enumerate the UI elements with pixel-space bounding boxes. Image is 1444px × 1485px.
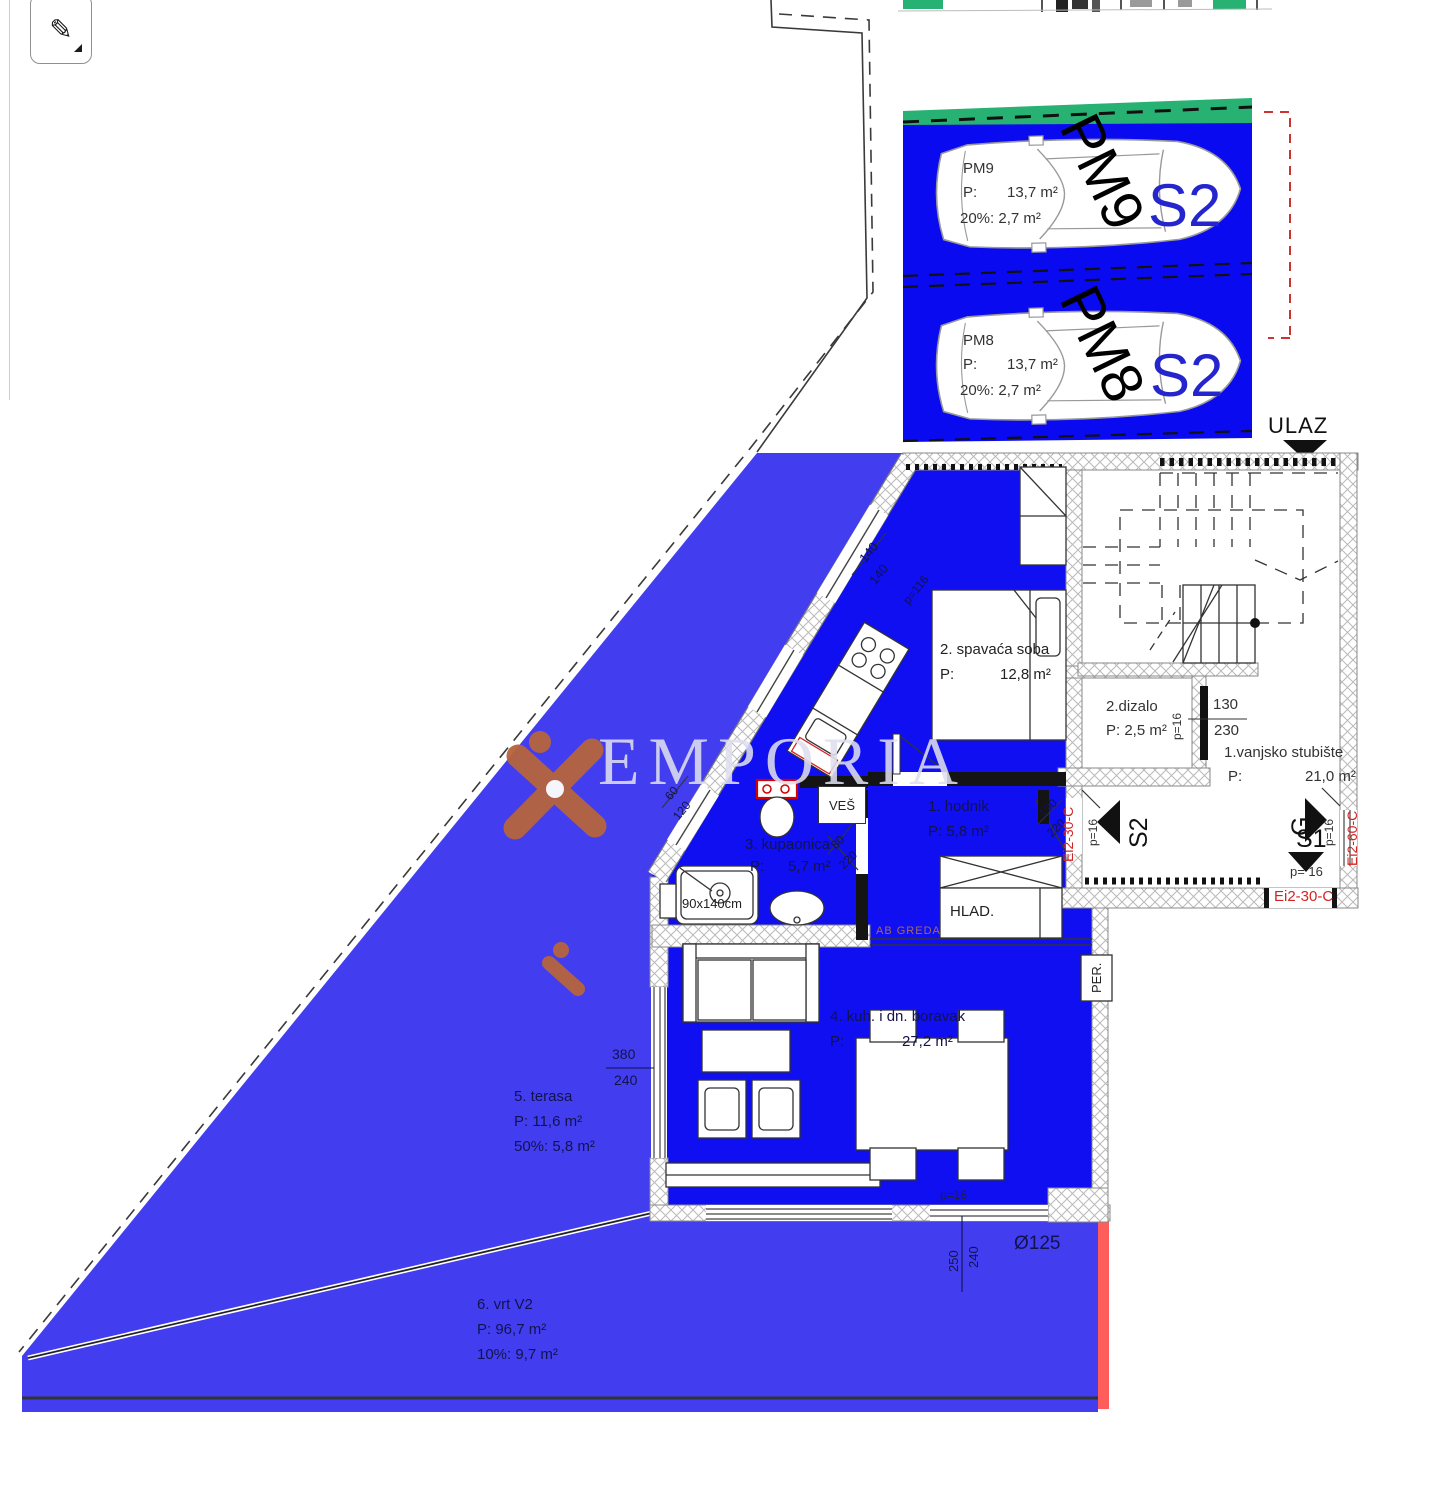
ab-greda-label: AB GREDA	[876, 925, 941, 939]
pm8-pct: 20%: 2,7 m²	[960, 382, 1041, 401]
dim-380: 380	[612, 1046, 635, 1064]
hlad-label: HLAD.	[950, 903, 994, 922]
pen-tool-button[interactable]: ✎	[30, 0, 92, 64]
dim-250: 250	[946, 1250, 962, 1272]
shower-size-label: 90x140cm	[682, 896, 742, 912]
dim-p16-dizalo: p=16	[1170, 713, 1185, 740]
dizalo-name: 2.dizalo	[1106, 698, 1158, 717]
hodnik-area: P: 5,8 m²	[928, 823, 989, 842]
dim-240-b: 240	[966, 1246, 982, 1268]
boravak-area: 27,2 m²	[902, 1033, 953, 1052]
vrt-area: P: 96,7 m²	[477, 1321, 546, 1340]
kupaonica-area: 5,7 m²	[788, 858, 831, 877]
dim-p16-left: p=16	[1086, 819, 1101, 846]
dim-230: 230	[1214, 722, 1239, 741]
fire-label-left: Ei2-30-C	[1060, 807, 1078, 862]
vrt-name: 6. vrt V2	[477, 1296, 533, 1315]
pm9-unit-label: S2	[1148, 168, 1221, 243]
kitchen-tall-units	[940, 856, 1062, 938]
emporia-watermark: EMPORIA	[598, 722, 967, 801]
red-dashed-boundary	[1264, 112, 1290, 338]
kupaonica-p: P:	[750, 858, 764, 877]
spavaca-name: 2. spavaća soba	[940, 641, 1049, 660]
kupaonica-name: 3. kupaonica	[745, 836, 830, 855]
pm9-pct: 20%: 2,7 m²	[960, 210, 1041, 229]
arrow-s2-label: S2	[1124, 817, 1155, 848]
dim-130: 130	[1213, 696, 1238, 715]
arrow-s1-label: S1	[1296, 824, 1327, 855]
terasa-area: P: 11,6 m²	[514, 1113, 582, 1132]
ulaz-label: ULAZ	[1268, 412, 1328, 440]
ves-box: VEŠ	[818, 786, 866, 824]
staircase	[1083, 473, 1338, 663]
fire-label-bottom: Ei2-30-C	[1274, 888, 1333, 907]
bed	[932, 590, 1066, 740]
pm8-unit-label: S2	[1150, 338, 1223, 413]
spavaca-area: 12,8 m²	[1000, 666, 1051, 685]
stubiste-area: 21,0 m²	[1305, 768, 1356, 787]
red-boundary-strip	[1098, 1213, 1109, 1409]
pm9-p-label: P:	[963, 184, 977, 203]
hodnik-name: 1. hodnik	[928, 798, 989, 817]
dim-240: 240	[614, 1072, 637, 1090]
wardrobe	[1020, 467, 1066, 565]
pen-icon: ✎	[49, 13, 72, 46]
terasa-pct: 50%: 5,8 m²	[514, 1138, 595, 1157]
stubiste-name: 1.vanjsko stubište	[1224, 744, 1343, 763]
pm8-area: 13,7 m²	[1007, 356, 1058, 375]
floorplan-canvas: EMPORIA ✎ PM9 P: 13,7 m² 20%: 2,7 m² PM9…	[0, 0, 1444, 1485]
dim-fi125: Ø125	[1014, 1232, 1060, 1256]
tv-sideboard	[666, 1163, 880, 1187]
dropdown-corner-icon	[74, 44, 82, 52]
spavaca-p: P:	[940, 666, 954, 685]
pm8-id: PM8	[963, 332, 994, 351]
dim-p16-bottom: p= 16	[1290, 864, 1323, 880]
pm9-id: PM9	[963, 160, 994, 179]
boravak-name: 4. kuh. i dn. boravak	[830, 1008, 965, 1027]
vrt-pct: 10%: 9,7 m²	[477, 1346, 558, 1365]
per-label: PER.	[1089, 963, 1105, 993]
dim-p16-wall: p=16	[940, 1188, 967, 1203]
dizalo-area: P: 2,5 m²	[1106, 722, 1167, 741]
sofa	[683, 944, 819, 1022]
stubiste-p: P:	[1228, 768, 1242, 787]
top-cutoff-strip	[898, 0, 1272, 12]
washbasin	[770, 891, 824, 925]
pm9-area: 13,7 m²	[1007, 184, 1058, 203]
fire-label-right: Ei2-60-C	[1344, 811, 1362, 866]
terasa-name: 5. terasa	[514, 1088, 572, 1107]
coffee-table	[702, 1030, 790, 1072]
pm8-p-label: P:	[963, 356, 977, 375]
boravak-p: P:	[830, 1033, 844, 1052]
